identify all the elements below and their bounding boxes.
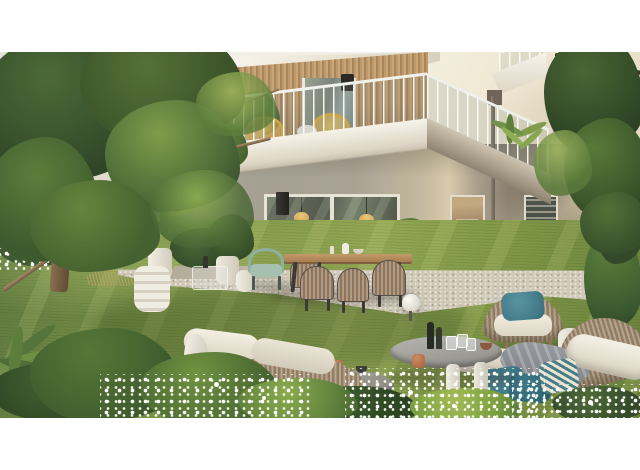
flower-blossom: [214, 382, 219, 387]
tree-foliage: [534, 130, 592, 196]
sphere-lamp: [402, 294, 420, 312]
chair-leg: [305, 299, 308, 311]
teal-pillow: [501, 291, 545, 322]
dining-chair: [300, 266, 334, 300]
page: [0, 0, 640, 470]
flower-blossom: [452, 404, 456, 408]
flower-blossom: [588, 400, 593, 405]
flower-blossom: [408, 390, 413, 395]
chair-leg: [327, 299, 330, 311]
chair-leg: [362, 301, 365, 313]
drinking-glass: [446, 336, 457, 350]
tree-foliage: [196, 72, 276, 136]
chair-leg: [342, 301, 345, 313]
property-photo: [0, 52, 640, 418]
flower-blossom: [262, 396, 266, 400]
dining-chair: [372, 260, 406, 296]
dining-chair: [337, 268, 369, 302]
tree-foliage: [150, 170, 254, 248]
copper-mug: [412, 354, 425, 368]
table-candle: [330, 246, 334, 254]
tree-foliage: [580, 192, 640, 254]
sphere-lamp-stem: [409, 311, 412, 321]
dark-bottle: [427, 322, 434, 349]
dark-bottle: [436, 327, 442, 349]
white-flower-spray: [512, 384, 640, 418]
chair-leg: [378, 295, 381, 307]
table-vase: [342, 243, 349, 254]
drinking-glass: [466, 338, 476, 351]
white-flower-spray: [100, 374, 310, 418]
right-tree: [540, 52, 640, 262]
